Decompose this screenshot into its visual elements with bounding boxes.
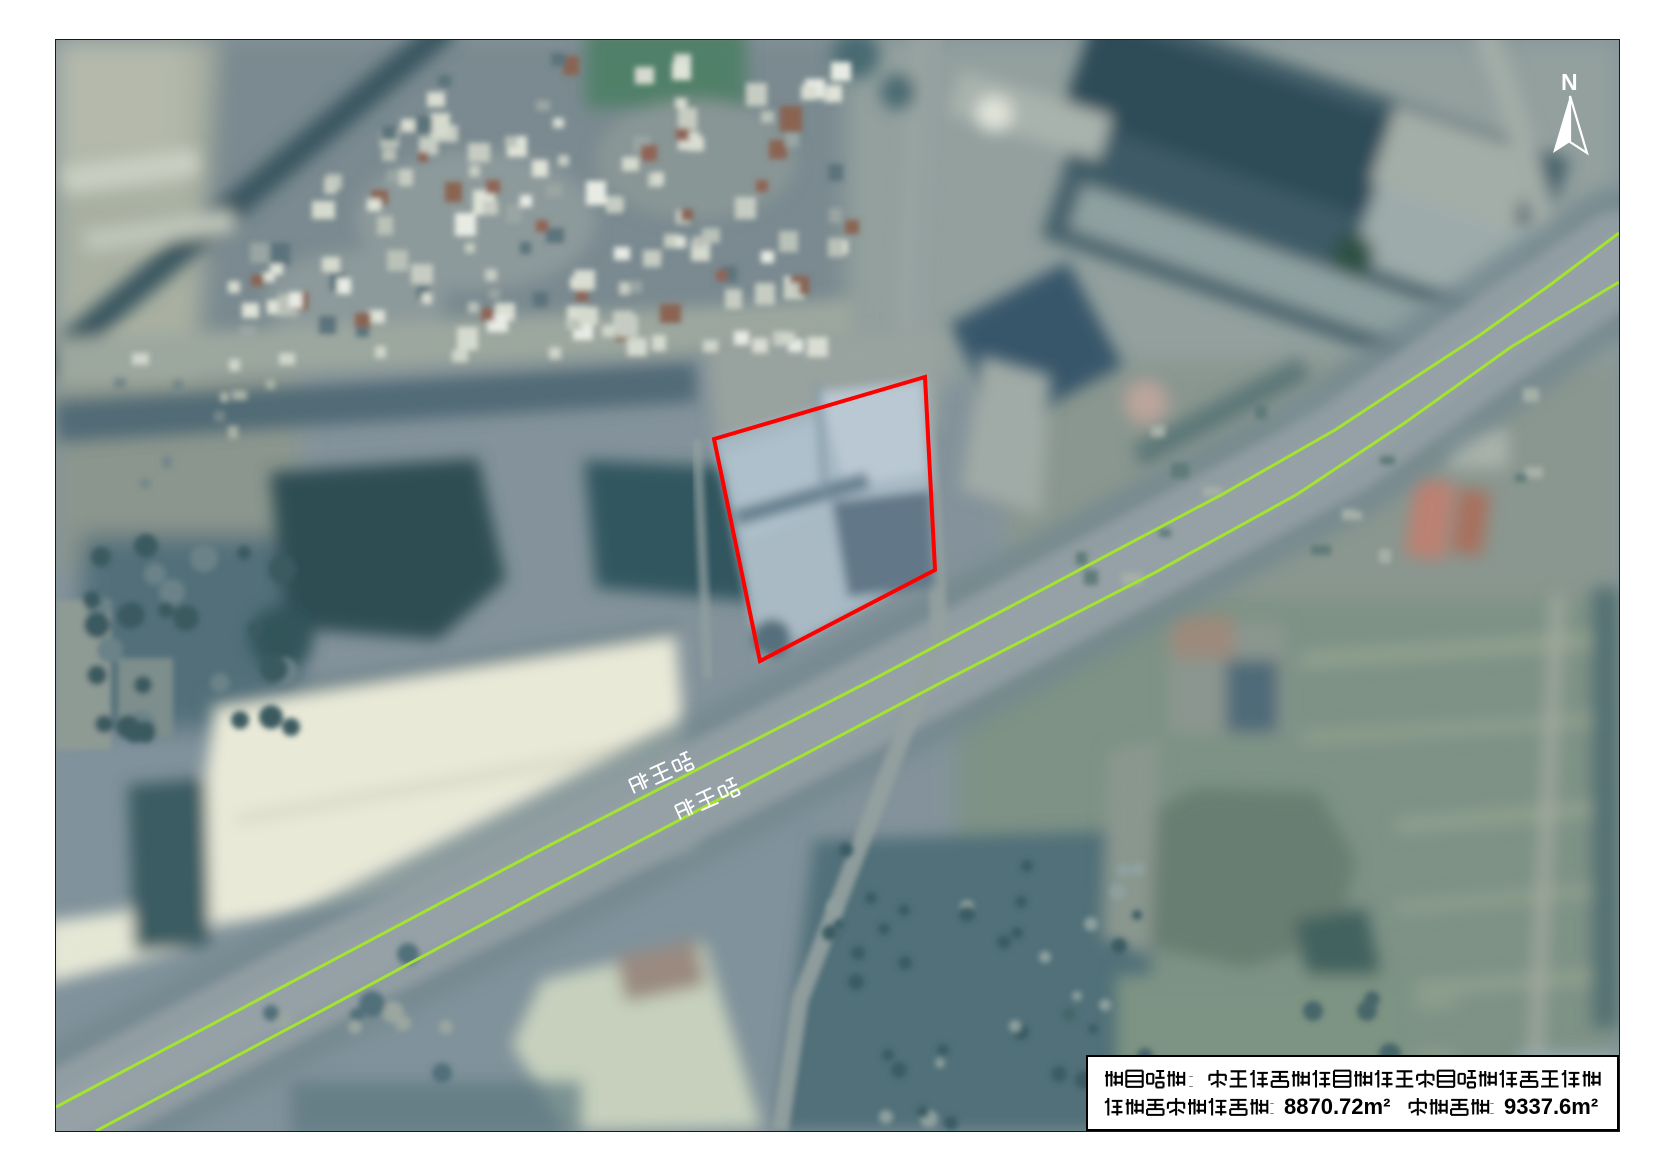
svg-text:N: N xyxy=(1561,69,1578,95)
svg-text:8870.72m²: 8870.72m² xyxy=(1284,1094,1390,1119)
svg-text:9337.6m²: 9337.6m² xyxy=(1504,1094,1598,1119)
